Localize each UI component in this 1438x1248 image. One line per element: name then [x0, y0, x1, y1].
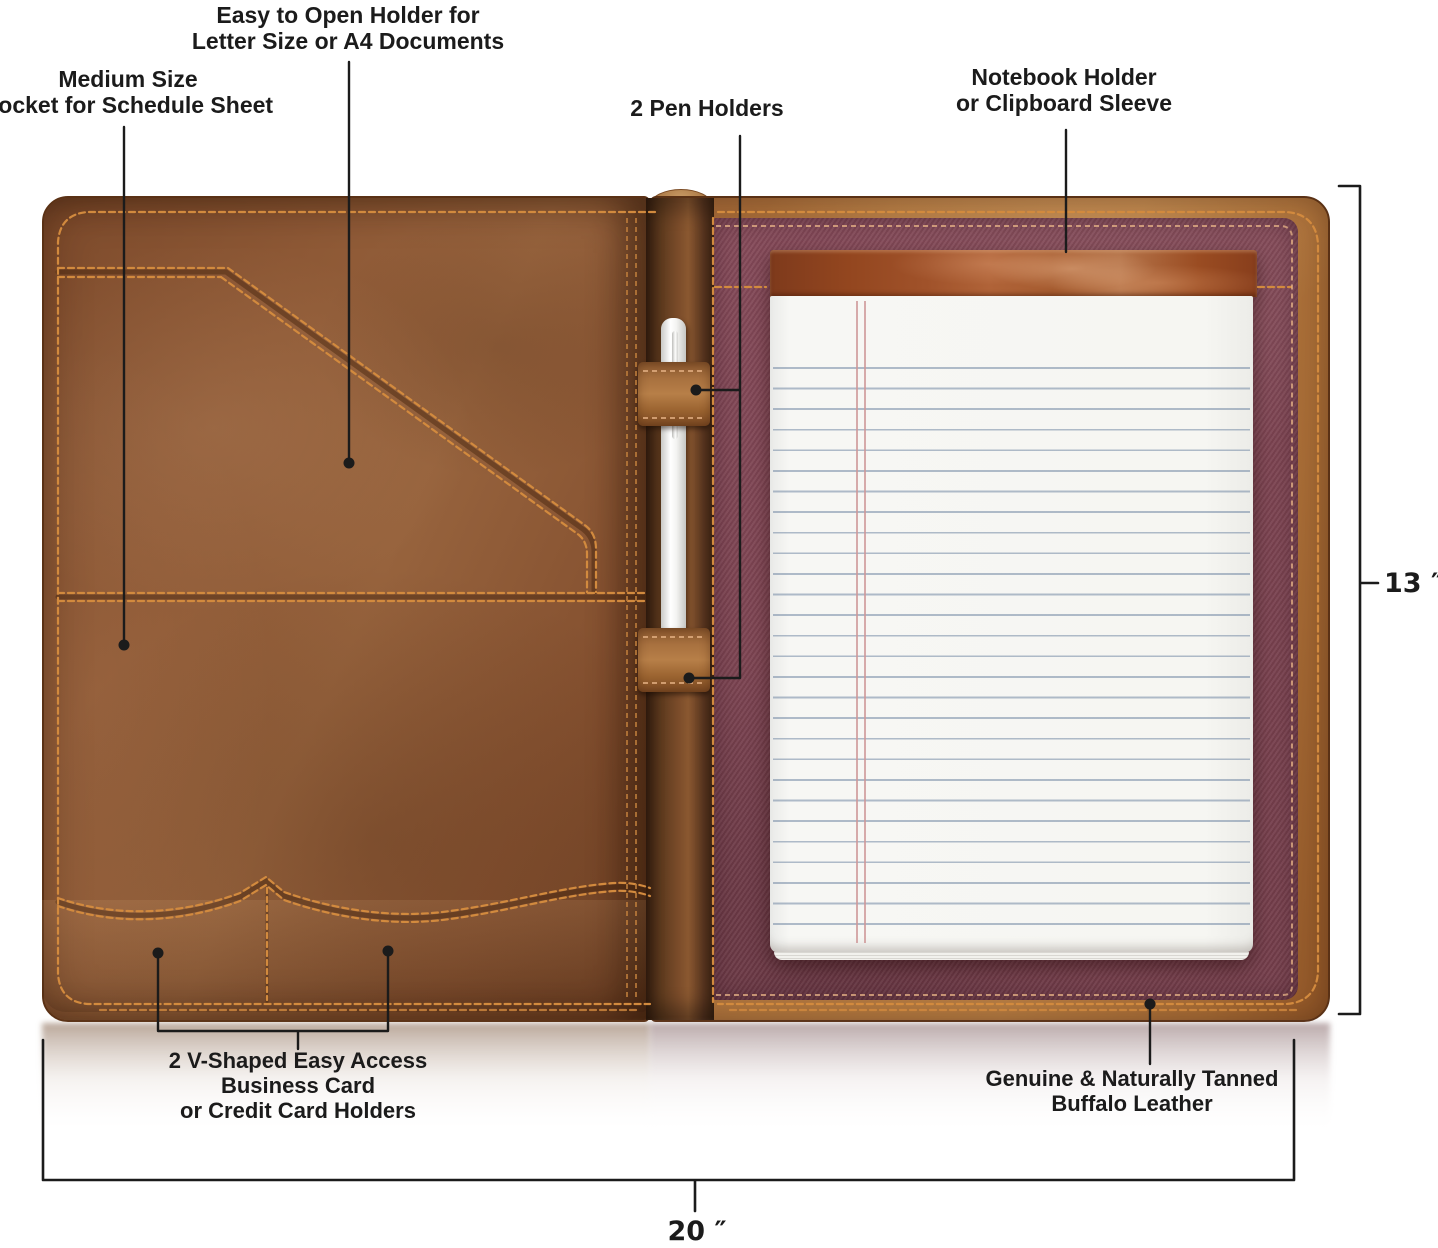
pad-rule-lines: [773, 367, 1250, 934]
annotation-card-holders: 2 V-Shaped Easy Access Business Card or …: [169, 1048, 427, 1123]
pen-loop-top: [638, 362, 710, 426]
height-dimension-bracket: [1339, 186, 1378, 1014]
pad-page-stack: [774, 952, 1249, 960]
annotation-notebook-holder: Notebook Holder or Clipboard Sleeve: [956, 64, 1172, 116]
height-dimension-label: 13 ″: [1384, 568, 1438, 599]
legal-pad: [770, 250, 1257, 953]
annotation-easy-open: Easy to Open Holder for Letter Size or A…: [192, 2, 504, 54]
product-photo: Easy to Open Holder for Letter Size or A…: [0, 0, 1438, 1248]
pen-loop-bottom: [638, 628, 710, 692]
annotation-pen-holders: 2 Pen Holders: [630, 95, 783, 121]
card-pocket-leather: [42, 900, 648, 1012]
annotation-buffalo-leather: Genuine & Naturally Tanned Buffalo Leath…: [986, 1066, 1279, 1116]
left-cover-leather: [42, 196, 650, 1022]
pad-margin-line: [856, 301, 866, 943]
pad-paper: [770, 296, 1253, 953]
pad-sleeve-strip: [770, 250, 1257, 297]
annotation-medium-pocket: Medium Size Pocket for Schedule Sheet: [0, 66, 273, 118]
width-dimension-label: 20 ″: [667, 1216, 726, 1247]
